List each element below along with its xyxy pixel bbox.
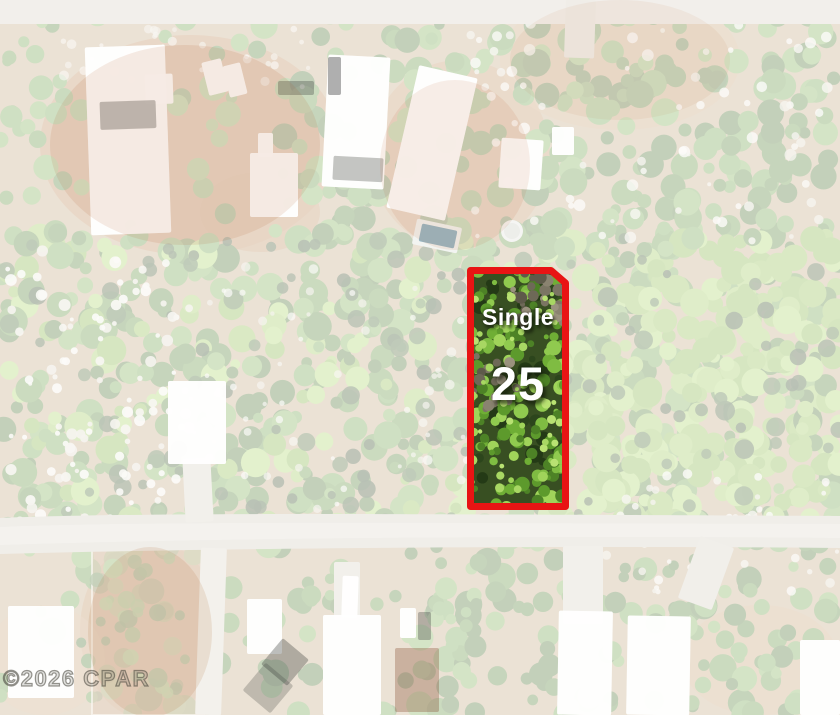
lot-number-label: 25 [466, 356, 570, 411]
copyright-watermark: ©2026 CPAR [3, 666, 150, 692]
aerial-scene [0, 0, 840, 715]
highlighted-lot: Single 25 [466, 266, 570, 511]
aerial-photo: Single 25 ©2026 CPAR [0, 0, 840, 715]
lot-type-label: Single [466, 304, 570, 331]
